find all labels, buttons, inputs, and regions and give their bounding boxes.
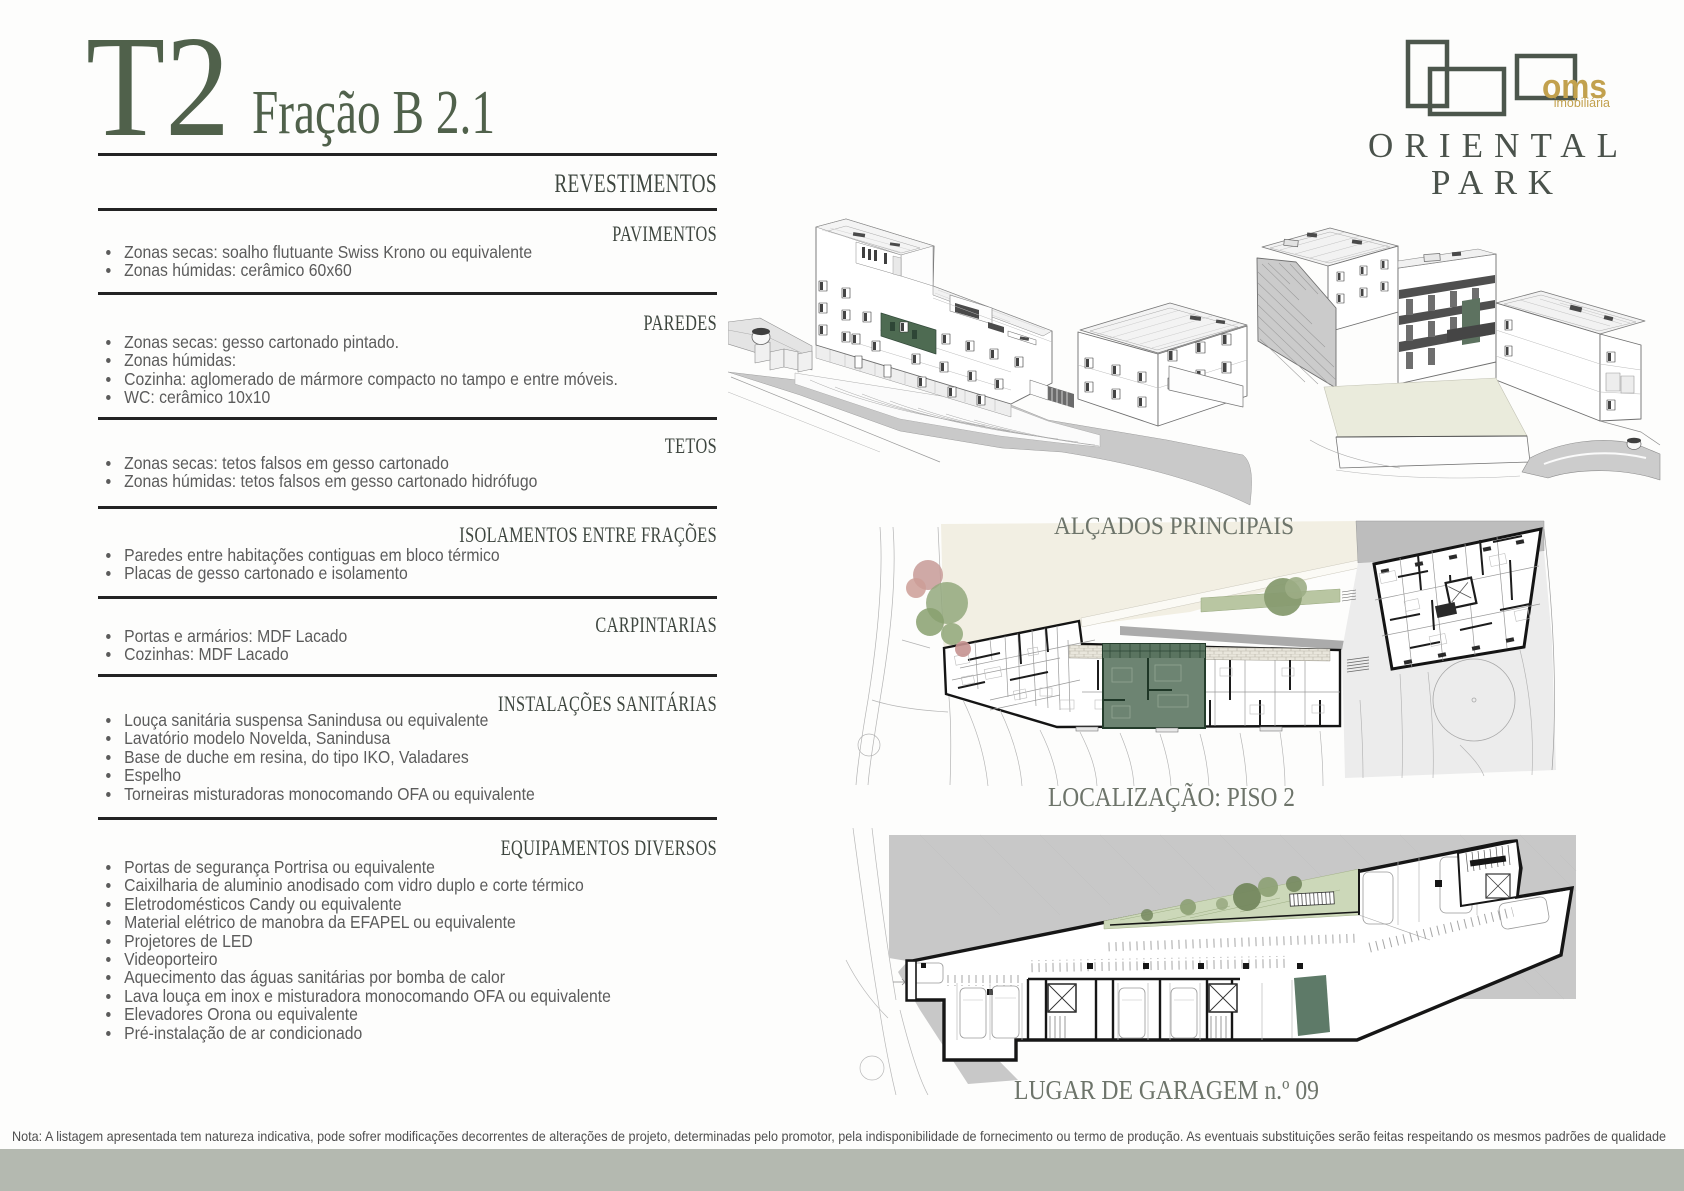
svg-text:ALÇADOS PRINCIPAIS: ALÇADOS PRINCIPAIS: [1054, 513, 1294, 540]
svg-text:Nota: A listagem apresentada t: Nota: A listagem apresentada tem naturez…: [12, 1128, 1666, 1144]
svg-text:PARK: PARK: [1431, 163, 1553, 202]
svg-text:LOCALIZAÇÃO: PISO 2: LOCALIZAÇÃO: PISO 2: [1048, 782, 1295, 812]
svg-text:ORIENTAL: ORIENTAL: [1368, 126, 1618, 165]
svg-text:Fração B 2.1: Fração B 2.1: [252, 79, 495, 147]
svg-text:T2: T2: [86, 7, 230, 167]
svg-text:LUGAR DE GARAGEM n.º 09: LUGAR DE GARAGEM n.º 09: [1014, 1075, 1319, 1105]
